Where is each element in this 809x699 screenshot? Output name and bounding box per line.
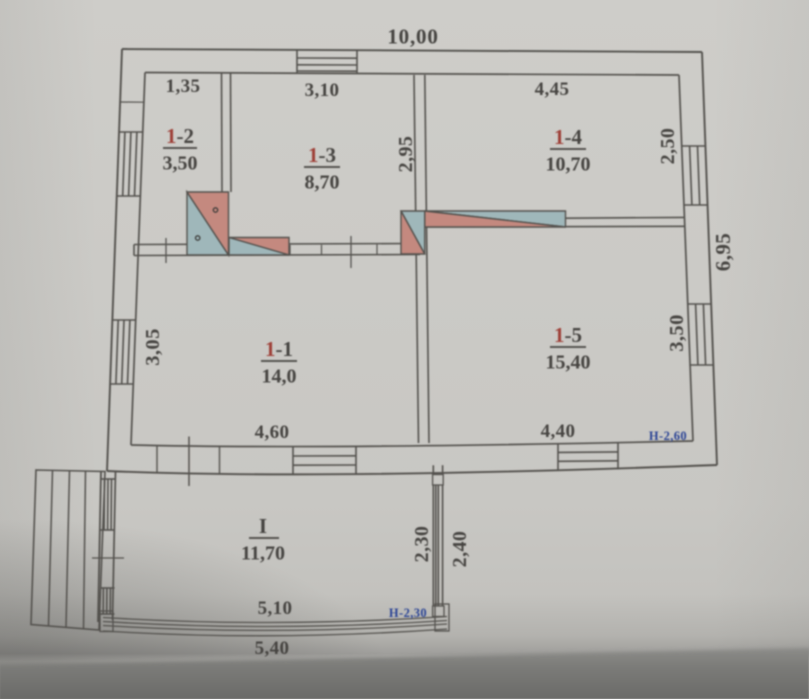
svg-text:3,10: 3,10 xyxy=(305,80,340,101)
svg-text:10,00: 10,00 xyxy=(387,25,438,49)
svg-text:4,40: 4,40 xyxy=(541,421,576,442)
svg-text:H-2,60: H-2,60 xyxy=(649,429,687,443)
svg-text:1,35: 1,35 xyxy=(166,76,201,97)
svg-text:1-1: 1-1 xyxy=(265,337,293,361)
svg-text:3,50: 3,50 xyxy=(163,153,198,175)
svg-text:11,70: 11,70 xyxy=(241,543,285,565)
svg-text:4,45: 4,45 xyxy=(535,79,570,100)
svg-text:2,40: 2,40 xyxy=(449,531,471,568)
svg-text:1-5: 1-5 xyxy=(554,323,582,347)
svg-text:8,70: 8,70 xyxy=(305,172,340,194)
svg-text:6,95: 6,95 xyxy=(711,233,735,271)
svg-text:15,40: 15,40 xyxy=(546,352,591,374)
svg-text:1-3: 1-3 xyxy=(308,143,336,167)
svg-text:2,95: 2,95 xyxy=(395,136,417,173)
svg-text:5,40: 5,40 xyxy=(255,638,290,659)
svg-text:3,05: 3,05 xyxy=(142,328,164,365)
svg-text:H-2,30: H-2,30 xyxy=(389,606,427,620)
svg-text:3,50: 3,50 xyxy=(666,314,688,351)
svg-text:I: I xyxy=(259,514,267,538)
svg-text:10,70: 10,70 xyxy=(546,154,591,176)
svg-text:1-2: 1-2 xyxy=(166,124,194,148)
svg-text:1-4: 1-4 xyxy=(554,125,582,149)
svg-text:5,10: 5,10 xyxy=(258,598,293,619)
svg-text:14,0: 14,0 xyxy=(262,366,297,388)
svg-text:2,30: 2,30 xyxy=(411,526,433,563)
svg-text:4,60: 4,60 xyxy=(255,422,290,443)
svg-text:2,50: 2,50 xyxy=(657,128,679,165)
